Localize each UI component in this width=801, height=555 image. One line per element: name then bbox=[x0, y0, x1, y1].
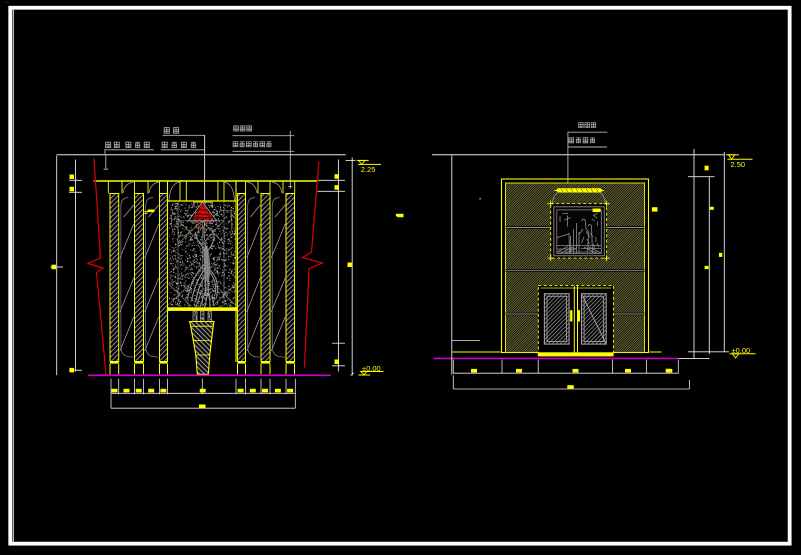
svg-text:2.25: 2.25 bbox=[361, 165, 376, 174]
svg-text:2.50: 2.50 bbox=[731, 160, 746, 169]
